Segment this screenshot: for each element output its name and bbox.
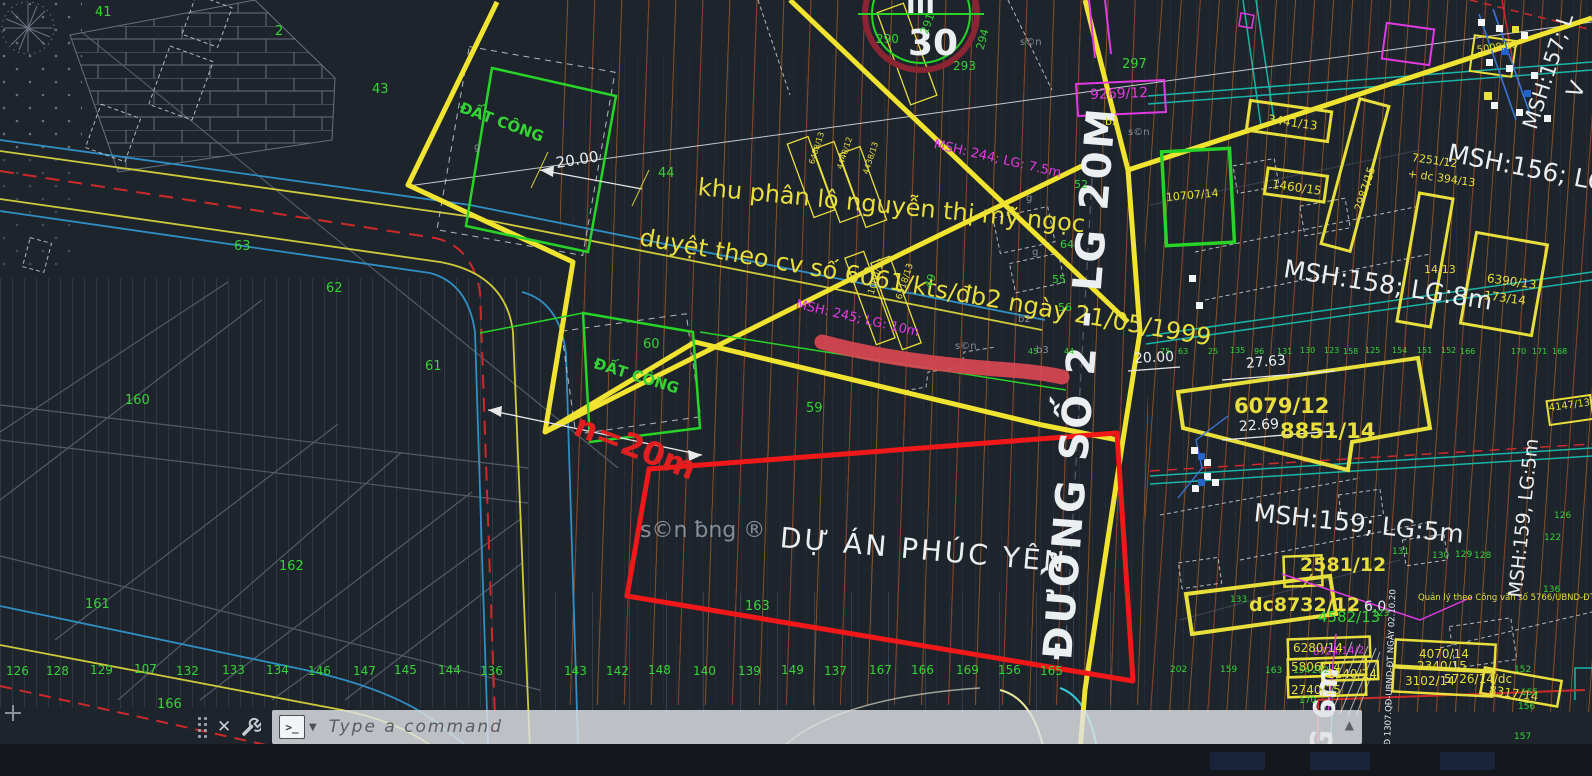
chevron-down-icon[interactable]: ▼ bbox=[309, 722, 317, 733]
drag-handle-icon[interactable] bbox=[198, 717, 207, 738]
plus-icon[interactable] bbox=[4, 704, 22, 722]
taskbar-thumb bbox=[1210, 752, 1265, 770]
autocad-drawing-canvas[interactable]: khu phân lô nguyễn thị mỹ ngọcduyệt theo… bbox=[0, 0, 1592, 776]
command-input[interactable]: Type a command bbox=[329, 717, 503, 737]
taskbar-thumb bbox=[1310, 752, 1370, 770]
wrench-icon[interactable] bbox=[241, 717, 261, 737]
chevron-up-icon[interactable]: ▲ bbox=[1345, 718, 1354, 732]
hatch-regions bbox=[0, 0, 1592, 712]
command-prompt-icon[interactable]: >_ bbox=[279, 715, 305, 739]
map-linework bbox=[0, 0, 1592, 776]
bottom-strip bbox=[0, 744, 1592, 776]
taskbar-thumb bbox=[1440, 752, 1495, 770]
command-bar-controls: ✕ bbox=[198, 710, 261, 744]
close-icon[interactable]: ✕ bbox=[217, 717, 231, 737]
command-line[interactable]: >_ ▼ Type a command ▲ bbox=[272, 710, 1362, 744]
